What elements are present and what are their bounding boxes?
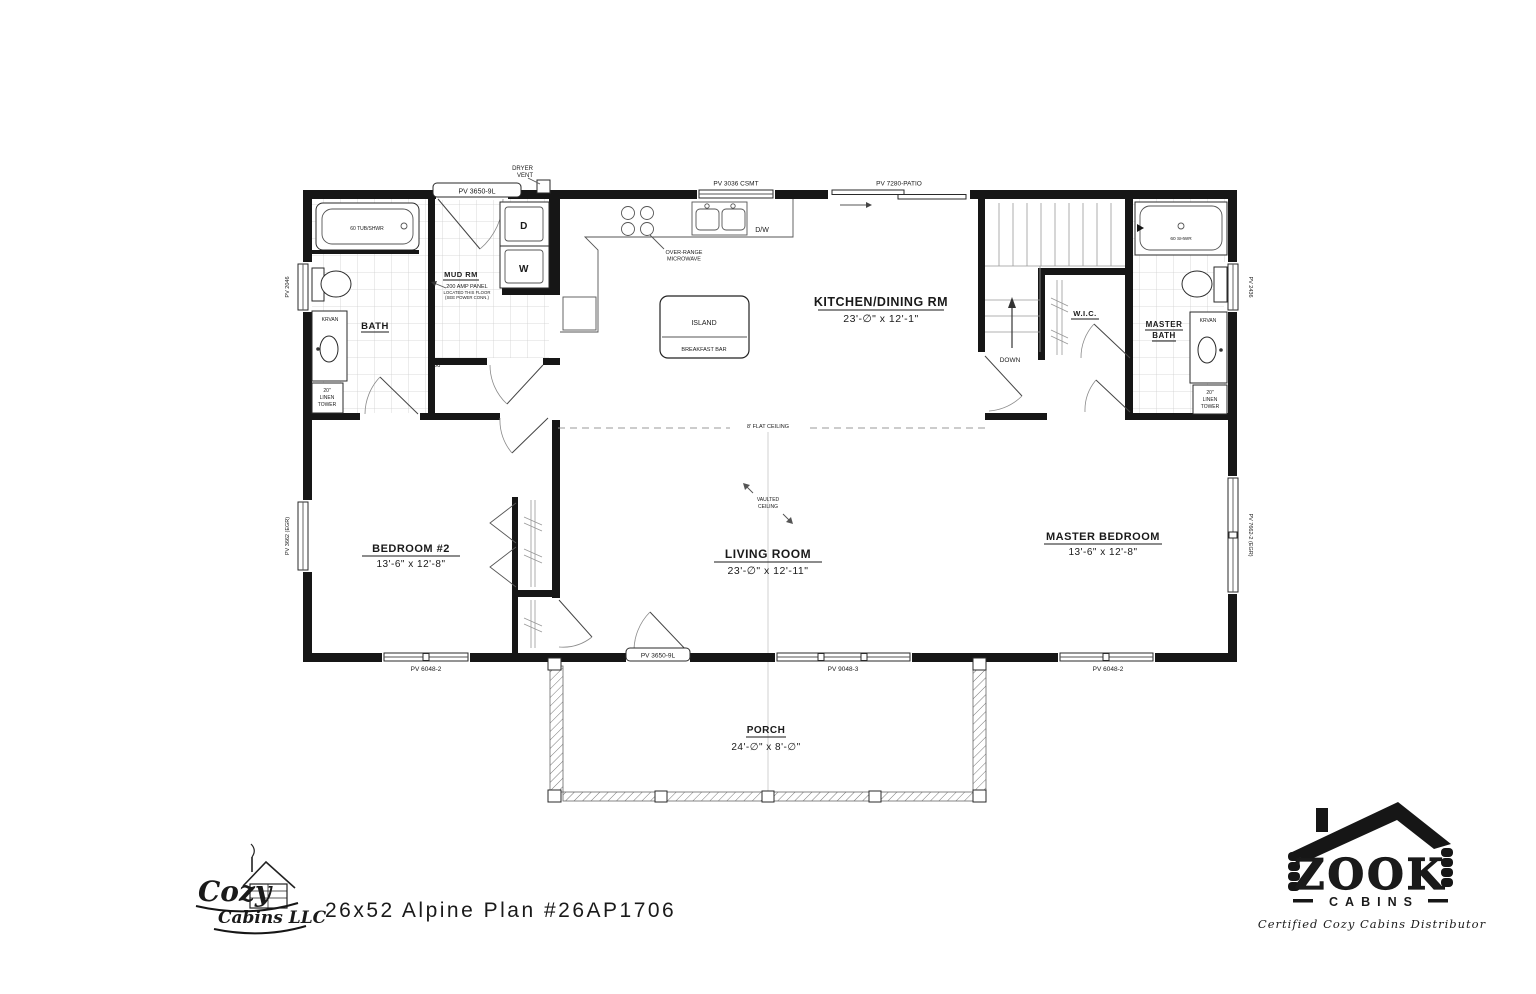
window-label: PV 6048-2 xyxy=(1093,666,1124,673)
linen-label: 20" xyxy=(323,388,331,394)
room-dims-bedroom2: 13'-6" x 12'-8" xyxy=(376,559,445,570)
vanity-label: KRVAN xyxy=(322,317,339,323)
dishwasher-label: D/W xyxy=(755,227,769,234)
kitchen-window: PV 3036 CSMT xyxy=(697,178,775,200)
dryer-vent-label: DRYER xyxy=(512,166,534,172)
closet-rod xyxy=(1051,280,1068,355)
ceiling-notes: 8' FLAT CEILING VAULTED CEILING xyxy=(558,420,985,795)
vanity-label: KRVAN xyxy=(1200,318,1217,324)
door-label: PV 3650-9L xyxy=(459,189,496,196)
room-label-kitchen: KITCHEN/DINING RM xyxy=(814,295,948,309)
kitchen-island: ISLAND BREAKFAST BAR xyxy=(660,296,749,358)
cozy-cabins-logo: Cozy Cabins LLC xyxy=(196,844,327,933)
panel-note: (SEE POWER CONN.) xyxy=(445,295,489,300)
zook-cabins-text: CABINS xyxy=(1329,895,1419,909)
window-label: PV 2046 xyxy=(285,276,291,297)
patio-door: PV 7280-PATIO xyxy=(828,178,970,208)
master-bedroom-side-window: PV 7662-2 (EGR) xyxy=(1224,476,1253,594)
room-label-bedroom2: BEDROOM #2 xyxy=(372,543,450,555)
bathtub-label: 60 TUB/SHWR xyxy=(350,226,384,232)
room-dims-master-bedroom: 13'-6" x 12'-8" xyxy=(1068,547,1137,558)
room-label-wic: W.I.C. xyxy=(1073,309,1096,318)
door-width-label: 36 xyxy=(434,363,441,369)
stairs-direction-arrow xyxy=(1008,297,1016,308)
breakfast-bar-label: BREAKFAST BAR xyxy=(681,347,726,353)
stairs: DOWN xyxy=(985,203,1125,411)
master-bedroom-window: PV 6048-2 xyxy=(1058,651,1155,673)
range xyxy=(622,207,654,236)
linen-label: LINEN xyxy=(320,395,335,401)
linen-label: LINEN xyxy=(1203,397,1218,403)
closet-rod xyxy=(524,500,542,648)
room-label-master-bath: MASTER xyxy=(1146,320,1183,329)
door-label: PV 3650-9L xyxy=(641,653,676,660)
window-label: PV 2436 xyxy=(1247,276,1253,297)
master-bath-side-window: PV 2436 xyxy=(1224,262,1253,312)
shower-label: 60 SHWR xyxy=(1170,236,1192,242)
window-label: PV 7662-2 (EGR) xyxy=(1247,513,1253,556)
door-label: PV 7280-PATIO xyxy=(876,181,922,188)
washer-label: W xyxy=(519,264,529,275)
porch-rail-right xyxy=(973,666,986,792)
linen-tower: 20" LINEN TOWER xyxy=(312,383,343,413)
island-label: ISLAND xyxy=(691,320,716,327)
shower: 60 SHWR xyxy=(1135,202,1227,255)
living-porch-door: PV 3650-9L xyxy=(626,612,690,662)
porch-rail-left xyxy=(550,666,563,792)
room-dims-living: 23'-∅" x 12'-11" xyxy=(728,565,809,577)
bedroom2-window: PV 6048-2 xyxy=(382,651,470,673)
room-label-master-bedroom: MASTER BEDROOM xyxy=(1046,531,1160,543)
stairs-down-label: DOWN xyxy=(1000,357,1021,364)
zook-chimney xyxy=(1316,808,1328,832)
bath-side-window: PV 2046 xyxy=(285,262,312,312)
floor-plan-drawing: PV 3650-9L DRYER VENT PV 3036 CSMT PV 72… xyxy=(0,0,1536,994)
porch: PORCH 24'-∅" x 8'-∅" xyxy=(548,658,986,802)
plan-title: 26x52 Alpine Plan #26AP1706 xyxy=(325,899,676,922)
window-label: PV 6048-2 xyxy=(411,666,442,673)
washer-unit: W xyxy=(500,246,549,288)
zook-cabins-logo: ZOOK CABINS Certified Cozy Cabins Distri… xyxy=(1258,802,1487,931)
walk-in-closet: W.I.C. xyxy=(1051,280,1130,412)
bath-vanity: KRVAN xyxy=(312,311,347,381)
room-dims-kitchen: 23'-∅" x 12'-1" xyxy=(843,313,918,325)
master-bedroom: MASTER BEDROOM 13'-6" x 12'-8" xyxy=(1044,531,1162,558)
linen-label: TOWER xyxy=(318,402,337,408)
kitchen: OVER-RANGE MICROWAVE D/W ISLAND BREAKFAS… xyxy=(560,199,948,358)
room-label-bath: BATH xyxy=(361,321,389,332)
cozy-logo-text: Cozy xyxy=(198,875,273,908)
dryer-unit: D xyxy=(500,202,549,246)
living-room: LIVING ROOM 23'-∅" x 12'-11" xyxy=(714,547,822,577)
window-label: PV 3662 (EGR) xyxy=(285,517,291,555)
zook-tagline: Certified Cozy Cabins Distributor xyxy=(1258,917,1487,931)
vaulted-ceiling-label: CEILING xyxy=(758,504,778,510)
vaulted-ceiling-label: VAULTED xyxy=(757,497,780,503)
microwave-label: OVER-RANGE xyxy=(666,250,703,256)
master-vanity: KRVAN xyxy=(1190,312,1227,383)
room-label-mudroom: MUD RM xyxy=(444,270,478,279)
room-label-porch: PORCH xyxy=(747,725,786,736)
living-window: PV 9048-3 xyxy=(775,651,912,673)
dryer-label: D xyxy=(520,221,528,232)
linen-label: 20" xyxy=(1206,390,1214,396)
window-label: PV 9048-3 xyxy=(828,666,859,673)
room-label-living: LIVING ROOM xyxy=(725,547,811,561)
linen-label: TOWER xyxy=(1201,404,1220,410)
bedroom2-side-window: PV 3662 (EGR) xyxy=(285,500,312,572)
dryer-vent-label: VENT xyxy=(517,173,533,179)
room-dims-porch: 24'-∅" x 8'-∅" xyxy=(731,742,800,753)
refrigerator xyxy=(563,297,596,330)
zook-wordmark: ZOOK xyxy=(1294,850,1446,899)
linen-tower: 20" LINEN TOWER xyxy=(1193,385,1227,414)
flat-ceiling-label: 8' FLAT CEILING xyxy=(747,424,789,430)
kitchen-sink xyxy=(692,202,747,235)
window-label: PV 3036 CSMT xyxy=(713,181,758,188)
room-label-master-bath: BATH xyxy=(1152,331,1176,340)
microwave-label: MICROWAVE xyxy=(667,257,701,263)
floor-plan-page: PV 3650-9L DRYER VENT PV 3036 CSMT PV 72… xyxy=(0,0,1536,994)
